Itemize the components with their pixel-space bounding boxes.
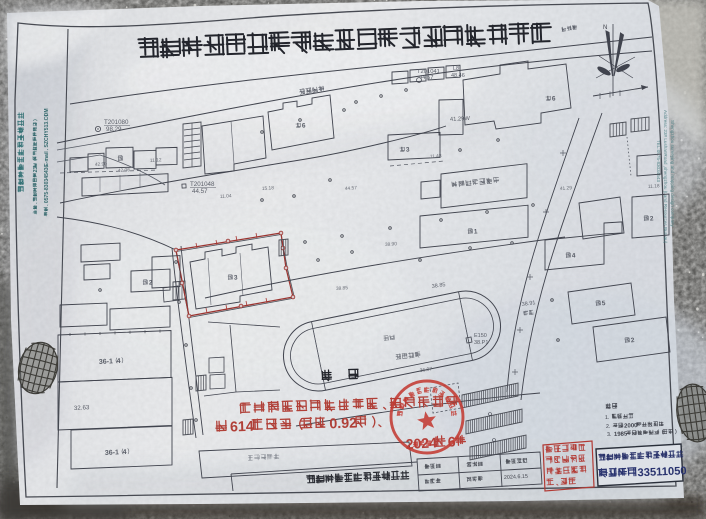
svg-text:2024.6.15: 2024.6.15 [504, 474, 528, 481]
svg-text:Shengzhou surveying and mappin: Shengzhou surveying and mapping design c… [670, 120, 675, 227]
svg-text:11.12: 11.12 [150, 157, 162, 164]
svg-text:23: 23 [33, 167, 39, 173]
svg-text:33511050: 33511050 [637, 465, 687, 479]
svg-text:4: 4 [123, 449, 127, 456]
svg-text:4: 4 [117, 358, 121, 365]
svg-text:98.29: 98.29 [106, 126, 122, 133]
svg-text:38.P1: 38.P1 [474, 340, 488, 346]
svg-text:T201080: T201080 [104, 119, 129, 126]
svg-text:32.63: 32.63 [74, 404, 90, 412]
svg-text:11.04: 11.04 [220, 193, 232, 200]
svg-text:L8: L8 [453, 66, 459, 72]
svg-text:44.57: 44.57 [192, 188, 208, 195]
svg-text:15.18: 15.18 [262, 185, 275, 192]
svg-text:38.85: 38.85 [336, 285, 349, 292]
svg-text:48.46: 48.46 [451, 73, 465, 79]
svg-text:38.90: 38.90 [385, 241, 398, 248]
svg-text:11.48: 11.48 [430, 153, 442, 160]
svg-text:1.: 1. [605, 415, 610, 421]
svg-text:41.29W: 41.29W [450, 116, 471, 123]
svg-text:42.90: 42.90 [95, 161, 108, 168]
svg-text:TEL:0575-83034543: TEL:0575-83034543 [656, 140, 661, 182]
svg-text:0.92: 0.92 [329, 416, 357, 433]
svg-text:3.: 3. [607, 432, 612, 438]
svg-text:2.: 2. [606, 424, 611, 430]
svg-text:2000: 2000 [624, 423, 638, 429]
svg-text:36-1: 36-1 [99, 358, 113, 366]
svg-text:44.57: 44.57 [419, 75, 434, 81]
svg-text:SZCHY513.COM: SZCHY513.COM [44, 108, 50, 147]
svg-text:E-mail: E-mail [44, 151, 50, 167]
svg-text:0575-83034543: 0575-83034543 [44, 167, 50, 203]
svg-text:1985: 1985 [614, 432, 628, 438]
svg-text:N: N [603, 25, 607, 31]
svg-text:44.57: 44.57 [345, 185, 358, 192]
svg-text:42.06: 42.06 [118, 167, 131, 174]
svg-text:11.18: 11.18 [648, 183, 660, 190]
svg-text:E150: E150 [474, 333, 487, 339]
svg-text:614: 614 [230, 419, 254, 436]
svg-text:Address: 23# LushanRoad ,sheng: Address: 23# LushanRoad ,shengzhou (Land… [663, 110, 668, 244]
svg-text:T201048: T201048 [190, 181, 215, 188]
svg-text:36-1: 36-1 [105, 449, 119, 457]
svg-text:41.29: 41.29 [560, 185, 573, 192]
